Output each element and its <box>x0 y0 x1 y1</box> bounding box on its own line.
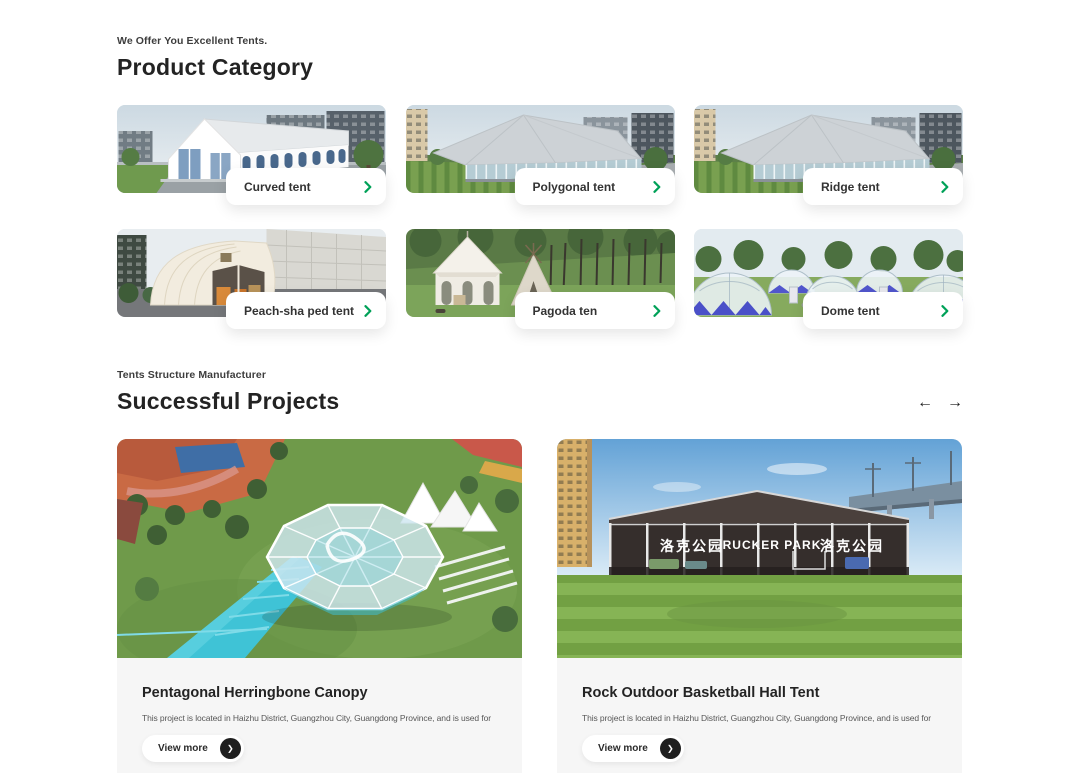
view-more-button[interactable]: View more ❯ <box>142 735 244 762</box>
category-card-peach-shaped-tent[interactable]: Peach-sha ped tent <box>117 229 386 317</box>
category-label-pill[interactable]: Dome tent <box>803 292 963 329</box>
successful-projects-title: Successful Projects <box>117 388 339 415</box>
category-label-pill[interactable]: Pagoda ten <box>515 292 675 329</box>
category-label-pill[interactable]: Curved tent <box>226 168 386 205</box>
basketball-hall-image[interactable]: 洛克公园 RUCKER PARK 洛克公园 <box>557 439 962 658</box>
category-label: Curved tent <box>244 180 311 194</box>
project-card-pentagonal-canopy: Pentagonal Herringbone Canopy This proje… <box>117 439 522 773</box>
signage-center: RUCKER PARK <box>723 538 822 552</box>
category-label: Peach-sha ped tent <box>244 304 354 318</box>
product-category-title: Product Category <box>117 54 963 81</box>
category-label-pill[interactable]: Ridge tent <box>803 168 963 205</box>
chevron-right-icon <box>364 181 372 193</box>
product-category-eyebrow: We Offer You Excellent Tents. <box>117 35 963 47</box>
chevron-right-icon <box>653 181 661 193</box>
pentagonal-canopy-image[interactable] <box>117 439 522 658</box>
project-card-basketball-hall: 洛克公园 RUCKER PARK 洛克公园 Rock Outdoo <box>557 439 962 773</box>
chevron-right-icon <box>653 305 661 317</box>
project-info: Pentagonal Herringbone Canopy This proje… <box>117 658 522 773</box>
prev-arrow-button[interactable]: ← <box>917 395 933 411</box>
arrow-right-circle-icon: ❯ <box>660 738 681 759</box>
category-label: Dome tent <box>821 304 880 318</box>
carousel-nav: ← → <box>917 395 963 415</box>
chevron-right-icon <box>364 305 372 317</box>
successful-projects-section: Tents Structure Manufacturer Successful … <box>117 369 963 773</box>
project-title: Rock Outdoor Basketball Hall Tent <box>582 685 937 701</box>
successful-projects-heading-group: Tents Structure Manufacturer Successful … <box>117 369 339 415</box>
category-card-curved-tent[interactable]: Curved tent <box>117 105 386 193</box>
view-more-label: View more <box>158 743 208 754</box>
product-category-header: We Offer You Excellent Tents. Product Ca… <box>117 0 963 81</box>
category-card-ridge-tent[interactable]: Ridge tent <box>694 105 963 193</box>
category-card-polygonal-tent[interactable]: Polygonal tent <box>406 105 675 193</box>
successful-projects-eyebrow: Tents Structure Manufacturer <box>117 369 339 381</box>
chevron-right-icon <box>941 305 949 317</box>
project-title: Pentagonal Herringbone Canopy <box>142 685 497 701</box>
project-info: Rock Outdoor Basketball Hall Tent This p… <box>557 658 962 773</box>
product-category-section: We Offer You Excellent Tents. Product Ca… <box>117 0 963 317</box>
signage-left: 洛克公园 <box>660 538 724 554</box>
arrow-right-circle-icon: ❯ <box>220 738 241 759</box>
category-label-pill[interactable]: Peach-sha ped tent <box>226 292 386 329</box>
category-card-pagoda-tent[interactable]: Pagoda ten <box>406 229 675 317</box>
category-card-dome-tent[interactable]: Dome tent <box>694 229 963 317</box>
page-content: We Offer You Excellent Tents. Product Ca… <box>117 0 963 773</box>
signage-right: 洛克公园 <box>820 538 884 554</box>
view-more-label: View more <box>598 743 648 754</box>
next-arrow-button[interactable]: → <box>947 395 963 411</box>
project-description: This project is located in Haizhu Distri… <box>582 713 937 723</box>
chevron-right-icon <box>941 181 949 193</box>
successful-projects-header: Tents Structure Manufacturer Successful … <box>117 369 963 415</box>
category-label: Pagoda ten <box>533 304 598 318</box>
view-more-button[interactable]: View more ❯ <box>582 735 684 762</box>
category-grid: Curved tent <box>117 105 963 317</box>
project-description: This project is located in Haizhu Distri… <box>142 713 497 723</box>
category-label: Polygonal tent <box>533 180 616 194</box>
category-label-pill[interactable]: Polygonal tent <box>515 168 675 205</box>
category-label: Ridge tent <box>821 180 880 194</box>
projects-grid: Pentagonal Herringbone Canopy This proje… <box>117 439 963 773</box>
